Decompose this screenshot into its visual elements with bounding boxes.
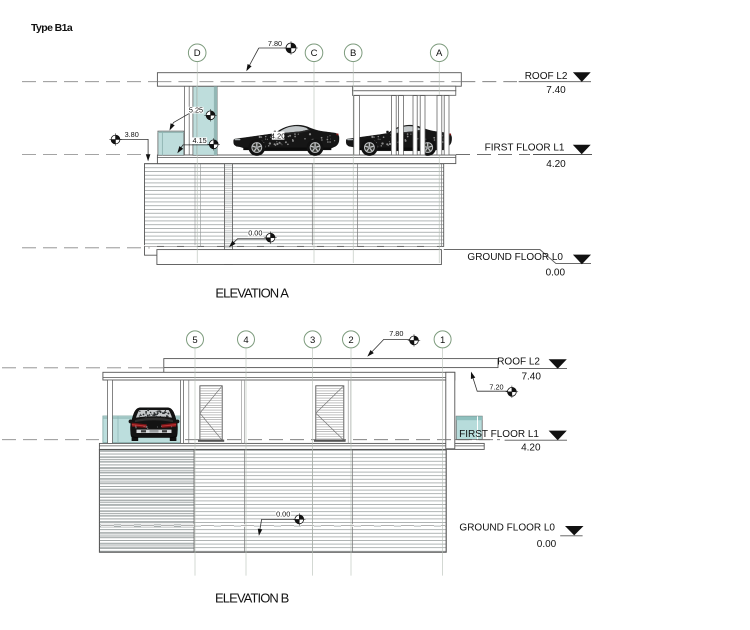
svg-text:7.80: 7.80	[268, 39, 282, 48]
svg-text:A: A	[436, 48, 443, 59]
svg-text:4.20: 4.20	[521, 443, 541, 454]
svg-text:2: 2	[348, 335, 353, 346]
svg-text:FIRST FLOOR L1: FIRST FLOOR L1	[459, 429, 539, 440]
svg-text:GROUND FLOOR L0: GROUND FLOOR L0	[467, 252, 563, 263]
svg-text:FIRST FLOOR L1: FIRST FLOOR L1	[485, 142, 565, 153]
svg-text:GROUND FLOOR L0: GROUND FLOOR L0	[459, 522, 555, 533]
svg-text:4.20: 4.20	[546, 159, 566, 170]
svg-text:7.80: 7.80	[389, 329, 403, 338]
svg-text:7.20: 7.20	[489, 382, 503, 391]
svg-text:ELEVATION A: ELEVATION A	[215, 286, 289, 301]
svg-text:ROOF L2: ROOF L2	[497, 356, 540, 367]
svg-text:0.00: 0.00	[276, 509, 290, 518]
svg-text:D: D	[194, 48, 201, 59]
svg-text:B: B	[350, 48, 356, 59]
svg-text:3: 3	[310, 335, 315, 346]
svg-text:ROOF L2: ROOF L2	[525, 71, 568, 82]
svg-text:0.00: 0.00	[537, 539, 557, 550]
svg-text:5: 5	[192, 335, 197, 346]
svg-text:0.00: 0.00	[546, 268, 566, 279]
svg-text:1: 1	[440, 335, 445, 346]
svg-text:7.40: 7.40	[546, 85, 566, 96]
svg-text:0.00: 0.00	[248, 228, 262, 237]
svg-text:3.80: 3.80	[125, 130, 139, 139]
svg-text:4.15: 4.15	[192, 136, 206, 145]
svg-text:5.25: 5.25	[189, 106, 203, 115]
svg-text:7.40: 7.40	[521, 371, 541, 382]
svg-text:Type B1a: Type B1a	[31, 22, 73, 34]
svg-text:4: 4	[243, 335, 248, 346]
svg-text:C: C	[311, 48, 318, 59]
svg-text:4.20: 4.20	[271, 131, 286, 140]
svg-text:ELEVATION B: ELEVATION B	[215, 591, 289, 606]
